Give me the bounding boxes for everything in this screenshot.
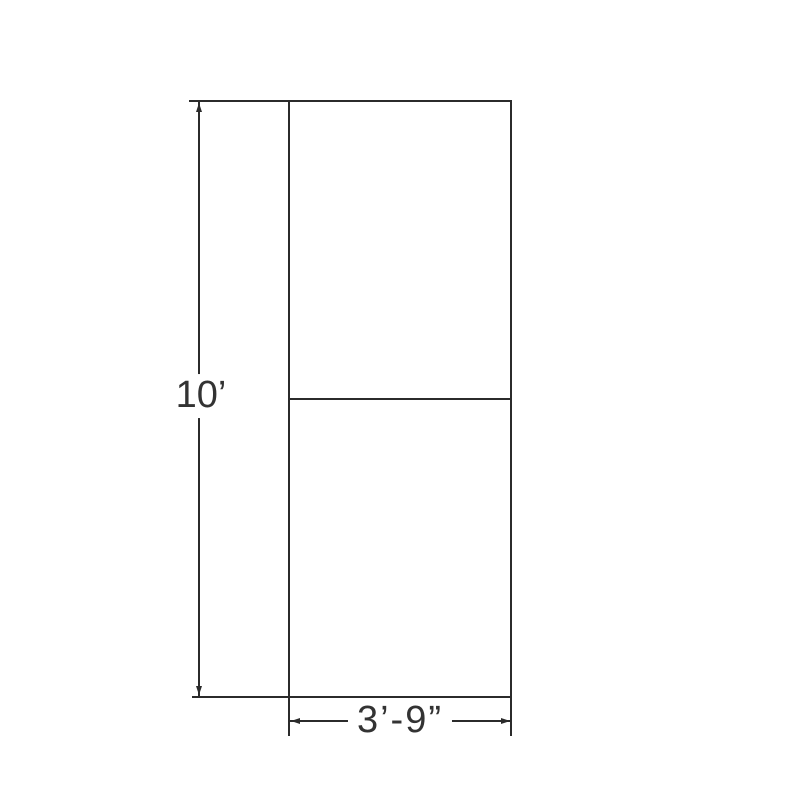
panel-divider-line bbox=[290, 398, 510, 400]
width-dimension-label: 3’-9” bbox=[348, 699, 452, 743]
height-dim-arrow-down-icon bbox=[196, 686, 202, 695]
height-dimension-label: 10’ bbox=[172, 374, 231, 418]
width-dim-right-extension-line bbox=[510, 698, 512, 736]
width-dim-arrow-left-icon bbox=[291, 718, 300, 724]
height-dim-top-extension-line bbox=[189, 100, 288, 102]
width-dim-arrow-right-icon bbox=[501, 718, 510, 724]
height-dim-bottom-extension-line bbox=[192, 696, 288, 698]
height-dim-arrow-up-icon bbox=[196, 103, 202, 112]
drawing-canvas: 10’ 3’-9” bbox=[0, 0, 800, 800]
width-dim-left-extension-line bbox=[288, 698, 290, 736]
